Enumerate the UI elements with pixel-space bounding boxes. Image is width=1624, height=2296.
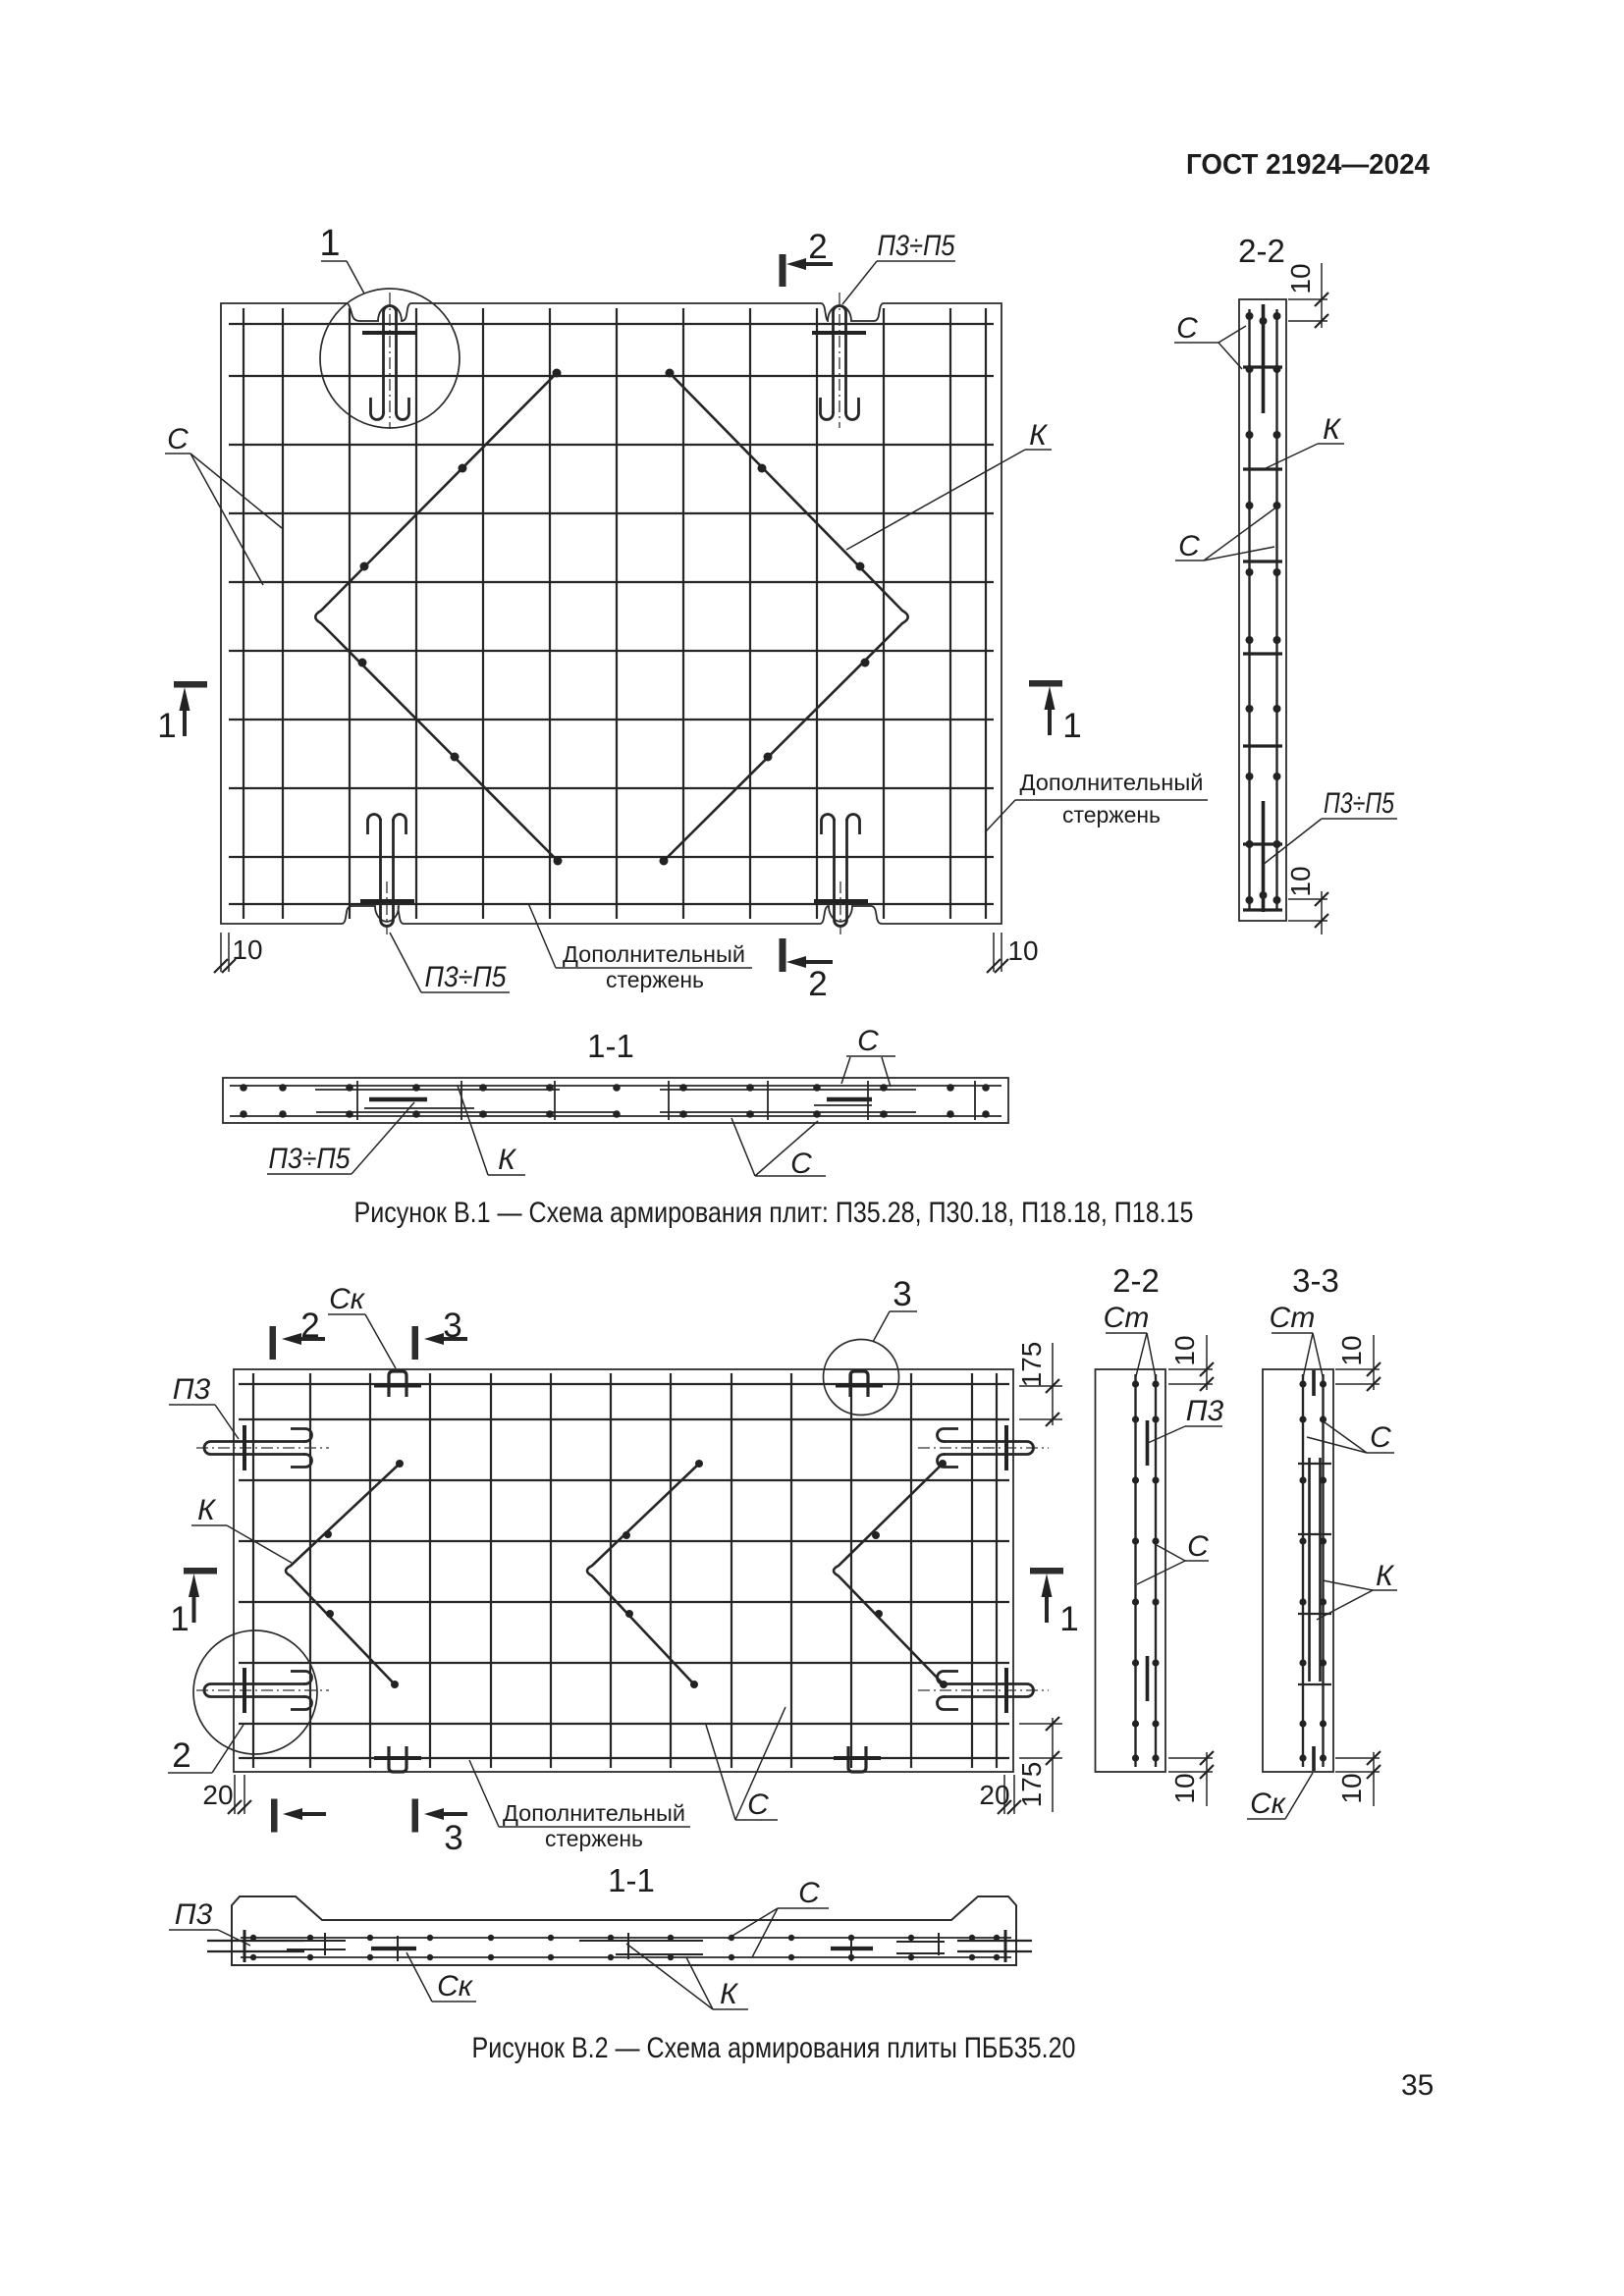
svg-text:стержень: стержень [606, 967, 704, 992]
svg-text:1: 1 [170, 1600, 189, 1638]
svg-text:Ст: Ст [1270, 1302, 1316, 1334]
svg-text:1: 1 [1059, 1600, 1078, 1638]
svg-text:С: С [1178, 530, 1200, 562]
svg-text:10: 10 [1336, 1773, 1367, 1803]
svg-text:С: С [167, 423, 189, 455]
svg-text:2: 2 [172, 1736, 190, 1775]
svg-text:35: 35 [1401, 2069, 1434, 2102]
svg-text:3-3: 3-3 [1292, 1262, 1339, 1299]
svg-text:20: 20 [979, 1780, 1009, 1810]
svg-text:175: 175 [1016, 1342, 1047, 1388]
svg-text:10: 10 [232, 934, 262, 965]
svg-text:1: 1 [1062, 707, 1081, 745]
svg-text:3: 3 [443, 1307, 461, 1345]
svg-text:1-1: 1-1 [608, 1862, 655, 1898]
svg-text:П3: П3 [175, 1898, 213, 1931]
svg-text:20: 20 [202, 1780, 233, 1810]
svg-text:1-1: 1-1 [587, 1028, 634, 1064]
svg-text:Ск: Ск [437, 1970, 474, 2002]
svg-text:П3÷П5: П3÷П5 [1324, 787, 1394, 820]
svg-text:10: 10 [1007, 935, 1038, 966]
svg-text:2-2: 2-2 [1112, 1262, 1160, 1299]
svg-text:стержень: стержень [1062, 802, 1161, 828]
svg-text:1: 1 [319, 223, 340, 264]
svg-text:2: 2 [808, 965, 827, 1003]
svg-text:П3: П3 [173, 1373, 211, 1406]
svg-text:Дополнительный: Дополнительный [1020, 770, 1204, 795]
svg-text:Рисунок В.2 — Схема армировани: Рисунок В.2 — Схема армирования плиты ПБ… [472, 2032, 1076, 2064]
svg-text:П3÷П5: П3÷П5 [269, 1143, 351, 1175]
svg-text:К: К [1029, 419, 1049, 452]
svg-text:С: С [857, 1025, 879, 1057]
svg-text:10: 10 [1169, 1773, 1200, 1803]
svg-text:К: К [1376, 1560, 1395, 1592]
svg-text:ГОСТ 21924—2024: ГОСТ 21924—2024 [1186, 149, 1430, 181]
svg-text:С: С [790, 1148, 812, 1180]
svg-text:1: 1 [157, 707, 176, 745]
svg-text:С: С [747, 1789, 769, 1821]
svg-text:К: К [720, 1978, 739, 2010]
svg-text:10: 10 [1285, 263, 1316, 294]
svg-text:С: С [798, 1877, 820, 1909]
svg-text:Ск: Ск [1250, 1788, 1287, 1820]
svg-text:3: 3 [893, 1275, 911, 1313]
svg-text:П3: П3 [1186, 1395, 1224, 1427]
svg-text:стержень: стержень [545, 1826, 643, 1851]
svg-text:Ск: Ск [329, 1283, 366, 1315]
svg-text:К: К [197, 1494, 217, 1526]
svg-text:С: С [1176, 312, 1198, 345]
svg-text:С: С [1187, 1530, 1209, 1563]
svg-text:Дополнительный: Дополнительный [563, 941, 745, 967]
svg-text:С: С [1370, 1421, 1391, 1454]
svg-text:3: 3 [444, 1819, 462, 1857]
svg-text:Дополнительный: Дополнительный [503, 1800, 685, 1826]
svg-text:2: 2 [300, 1307, 319, 1345]
svg-text:К: К [498, 1144, 517, 1176]
svg-text:Ст: Ст [1104, 1302, 1150, 1334]
svg-text:К: К [1323, 413, 1342, 446]
svg-text:2: 2 [808, 228, 827, 266]
svg-text:10: 10 [1169, 1335, 1200, 1365]
svg-text:П3÷П5: П3÷П5 [878, 230, 955, 262]
svg-text:Рисунок В.1 — Схема армировани: Рисунок В.1 — Схема армирования плит: П3… [354, 1197, 1194, 1229]
svg-text:10: 10 [1285, 866, 1316, 896]
svg-text:10: 10 [1336, 1335, 1367, 1365]
svg-text:П3÷П5: П3÷П5 [425, 961, 507, 993]
svg-text:2-2: 2-2 [1238, 233, 1285, 269]
